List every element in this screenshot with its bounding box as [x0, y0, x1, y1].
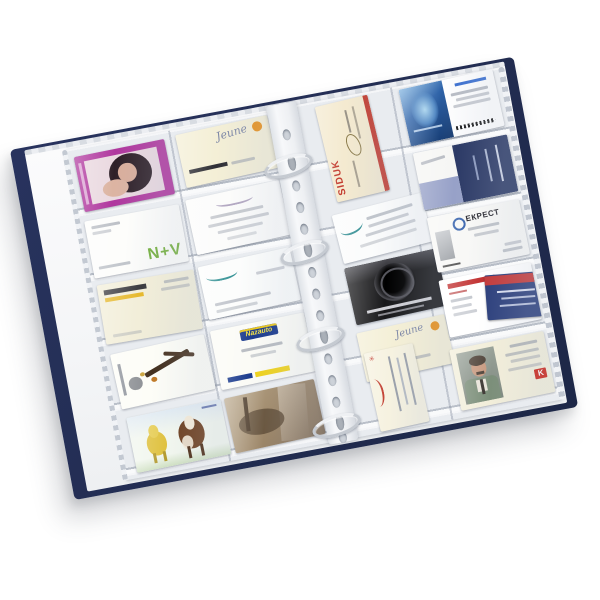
circle-mark	[128, 376, 144, 392]
nazauto-card: Nazauto	[210, 312, 316, 390]
punch-hole	[299, 223, 309, 235]
punch-hole	[323, 353, 333, 365]
blue-bar	[227, 373, 253, 383]
navy-panel	[452, 134, 518, 202]
gray-block	[434, 229, 455, 261]
brand: ЕКРЕСТ	[465, 208, 500, 223]
line-mark	[505, 239, 522, 245]
punch-hole	[331, 396, 341, 408]
yellow-underline-card	[97, 269, 204, 344]
box-mark	[162, 451, 167, 461]
branch-fork	[163, 352, 194, 357]
punch-hole	[295, 201, 305, 213]
script-logo: Jeune	[215, 123, 248, 143]
siduk-card: SIDUK	[315, 95, 390, 203]
punch-hole	[307, 266, 317, 278]
address-line	[189, 162, 228, 174]
script-logo: Jeune	[394, 323, 424, 341]
portrait-man-card: K	[449, 331, 555, 411]
squiggle-mark	[214, 192, 254, 210]
punch-hole	[311, 288, 321, 300]
red-heading-insert-card	[438, 262, 542, 338]
line-mark	[231, 156, 256, 164]
punch-hole	[315, 310, 325, 322]
punch-hole	[282, 129, 292, 141]
orange-dot	[252, 121, 264, 133]
line-mark	[256, 266, 284, 275]
vertical-caption	[117, 364, 127, 395]
punch-hole	[291, 180, 301, 192]
line-mark	[92, 229, 111, 235]
sepia-photo-card	[224, 379, 326, 454]
line-mark	[474, 229, 499, 237]
red-edge-stripe	[362, 95, 390, 191]
line-mark	[98, 261, 131, 270]
line-mark	[161, 283, 190, 291]
barcode	[456, 117, 496, 130]
woman-portrait-card	[74, 139, 175, 212]
jeune-script-card: Jeune	[175, 115, 278, 188]
line-mark	[241, 341, 283, 352]
line-mark	[502, 246, 523, 253]
line-mark	[113, 330, 142, 338]
sketch	[420, 155, 445, 165]
line-mark	[450, 295, 473, 302]
blue-title	[454, 76, 487, 86]
periwinkle-block	[419, 176, 464, 210]
yellow-bar	[255, 365, 290, 377]
red-star: ✳	[368, 356, 375, 364]
binder-scene: JeuneN+VNazauto SIDUKЕКРЕСТJeune✳K	[6, 48, 585, 509]
red-script-logo	[366, 378, 387, 409]
teal-script-logo	[204, 266, 238, 284]
line-mark	[250, 350, 277, 358]
line-mark	[163, 276, 189, 283]
punch-hole	[327, 374, 337, 386]
navy-split-card	[413, 134, 519, 210]
line-mark	[227, 231, 258, 241]
oval-logo	[343, 132, 364, 158]
circle-mark	[150, 377, 157, 383]
line-mark	[91, 221, 120, 229]
red-k-logo: K	[534, 367, 548, 379]
ink-sketch-card	[110, 334, 216, 409]
line-mark	[453, 309, 478, 317]
line-mark	[360, 227, 417, 248]
circle-mark	[139, 371, 145, 376]
brand: SIDUK	[331, 159, 349, 196]
box-mark	[344, 110, 351, 133]
orange-dot	[429, 320, 440, 331]
n-plus-v-card: N+V	[84, 204, 189, 279]
nv-logo: N+V	[147, 242, 184, 264]
box-mark	[442, 262, 461, 268]
box-mark	[352, 160, 360, 187]
teal-script-logo	[337, 216, 365, 239]
line-mark	[451, 303, 472, 310]
ornate-text-card	[185, 180, 291, 255]
box-mark	[449, 289, 468, 295]
ekrest-card: ЕКРЕСТ	[427, 199, 530, 273]
cows-card	[126, 399, 231, 473]
